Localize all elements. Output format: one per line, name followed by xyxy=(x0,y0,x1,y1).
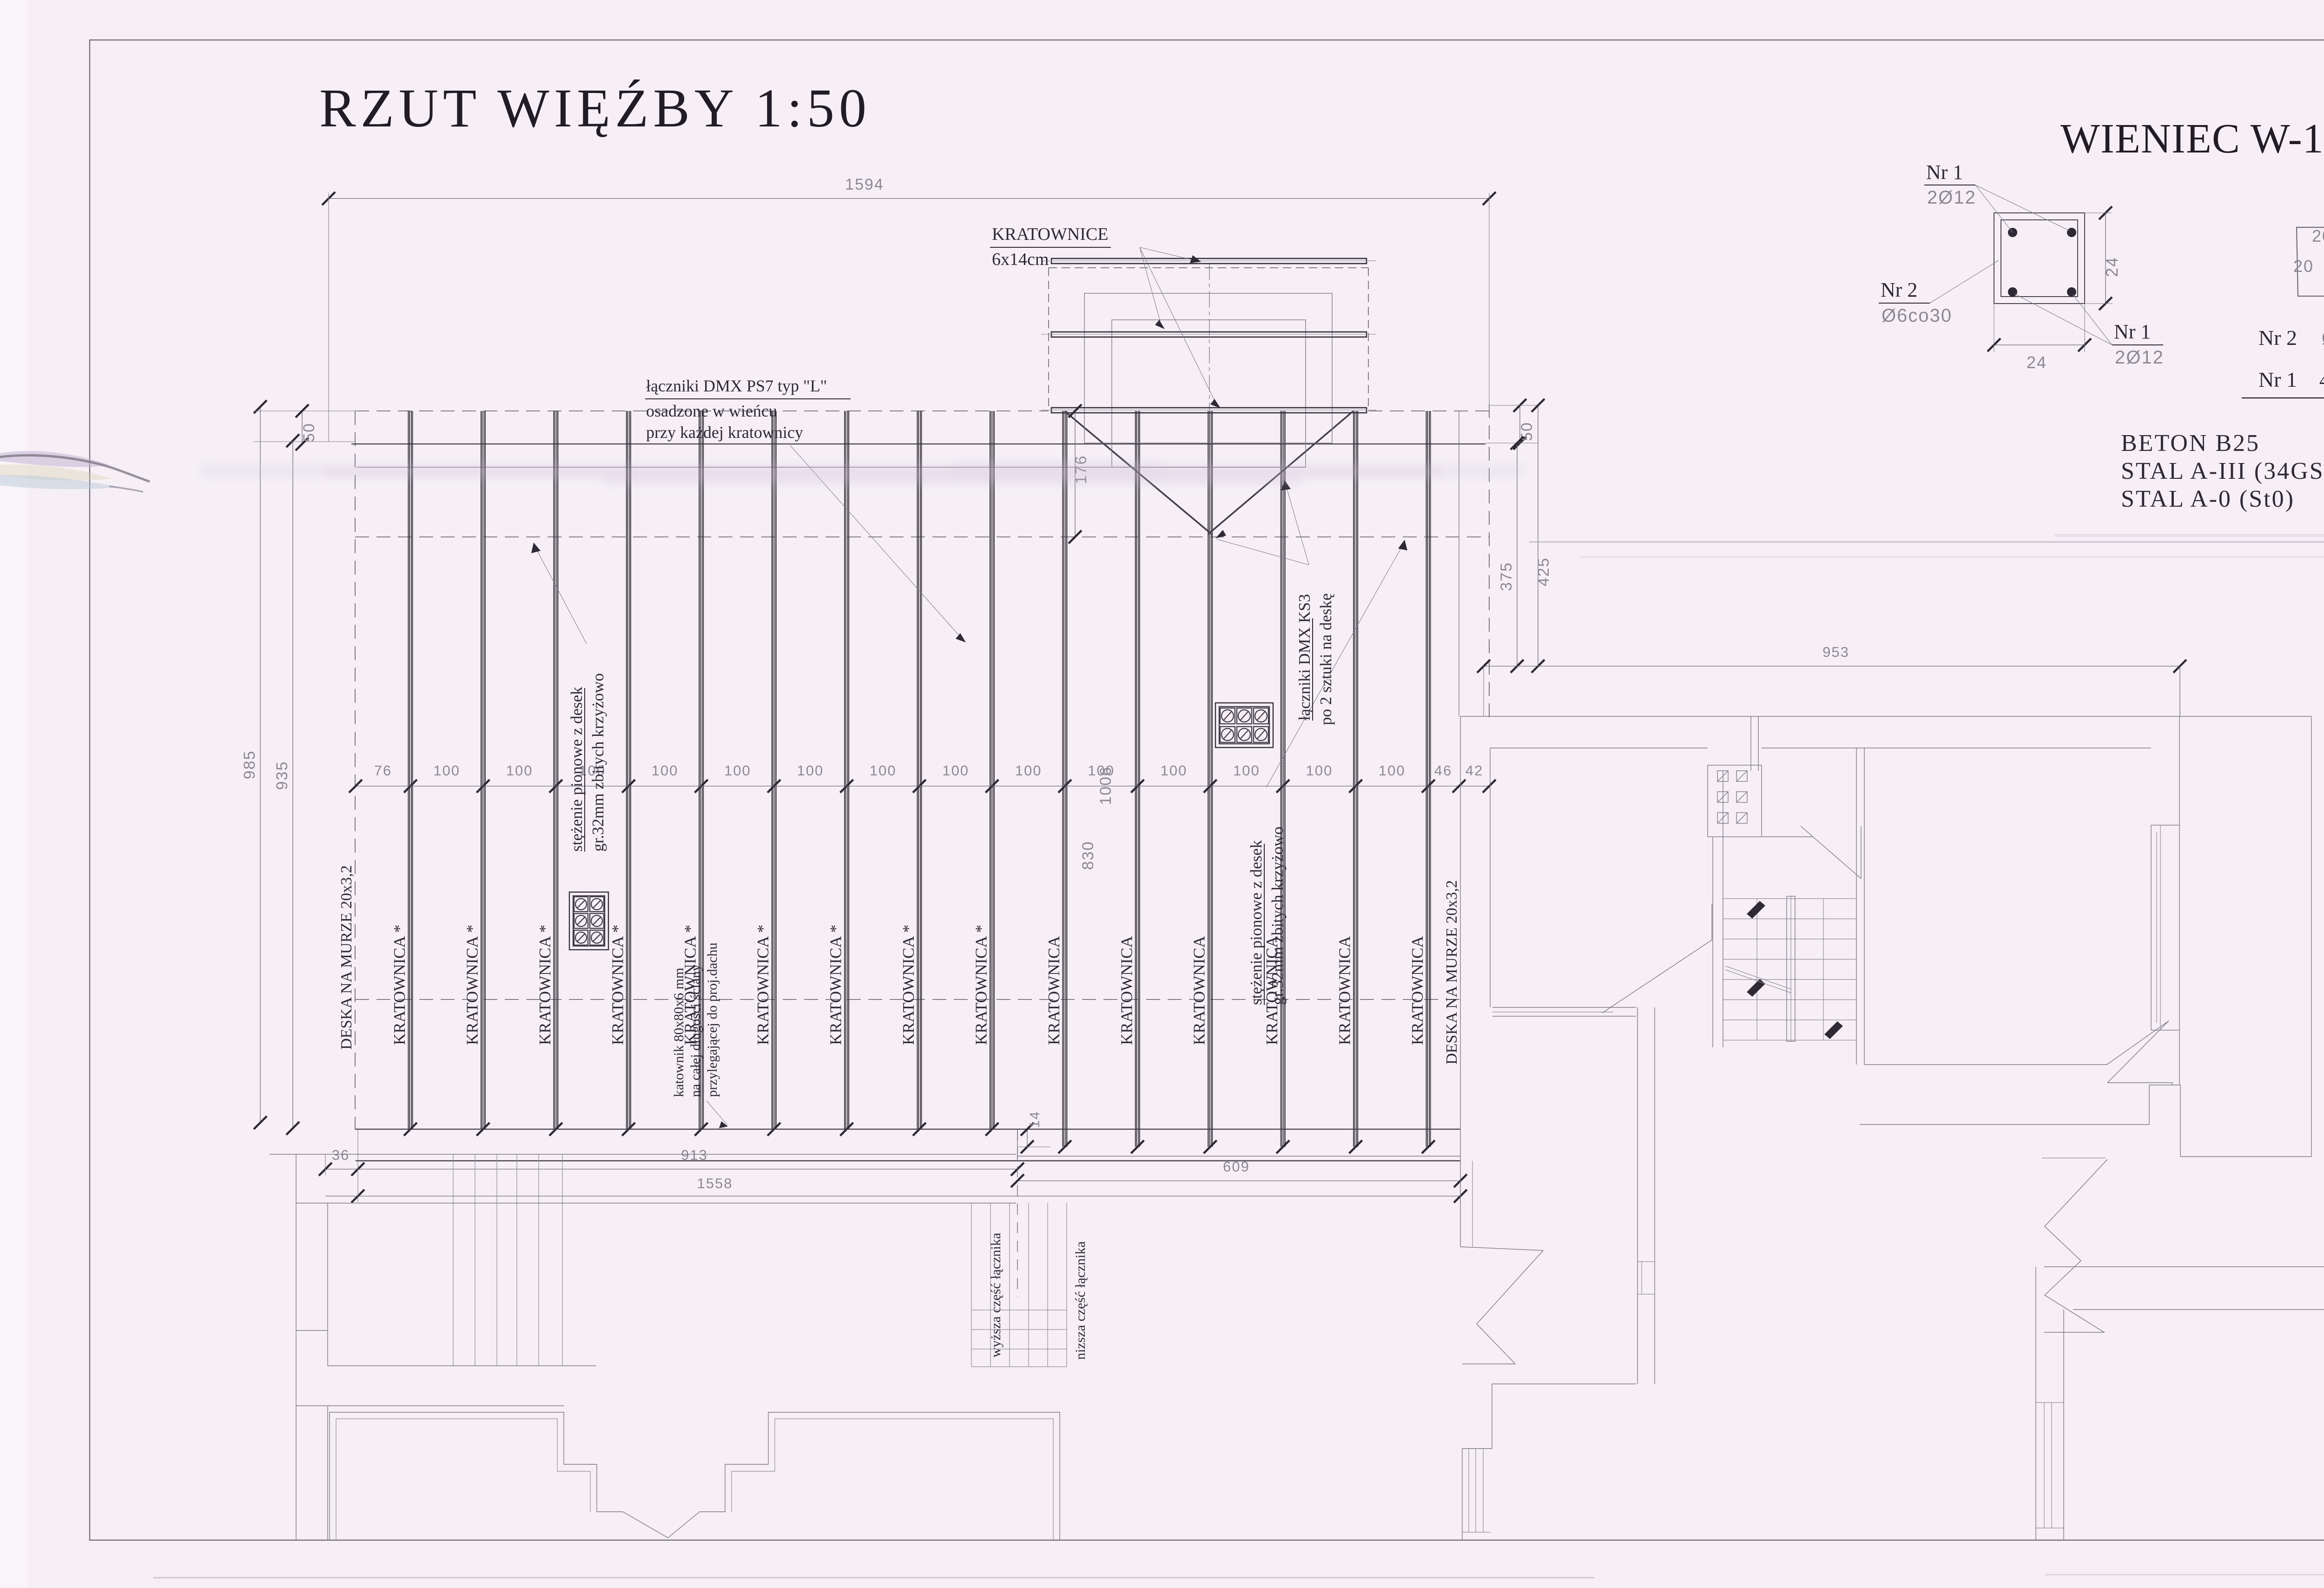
svg-text:913: 913 xyxy=(681,1147,708,1163)
svg-text:Nr 1: Nr 1 xyxy=(1926,161,1963,184)
svg-text:DESKA NA MURZE 20x3,2: DESKA NA MURZE 20x3,2 xyxy=(338,865,355,1050)
svg-text:100: 100 xyxy=(1306,762,1333,779)
svg-text:100: 100 xyxy=(433,762,460,779)
svg-text:BETON B25: BETON B25 xyxy=(2121,430,2260,457)
svg-text:gr.32mm zbitych krzyżowo: gr.32mm zbitych krzyżowo xyxy=(589,673,607,852)
svg-text:6x14cm: 6x14cm xyxy=(992,250,1049,269)
svg-text:STAL A-0 (St0): STAL A-0 (St0) xyxy=(2121,486,2295,512)
svg-text:WIENIEC W-1: WIENIEC W-1 xyxy=(2060,116,2324,162)
svg-text:KRATOWNICE: KRATOWNICE xyxy=(992,225,1109,244)
svg-text:14: 14 xyxy=(1027,1111,1043,1128)
svg-text:KRATOWNICA: KRATOWNICA xyxy=(1190,936,1208,1045)
svg-text:STAL A-III (34GS): STAL A-III (34GS) xyxy=(2121,458,2324,484)
svg-text:100: 100 xyxy=(1161,762,1188,779)
svg-text:100: 100 xyxy=(1233,762,1260,779)
svg-text:KRATOWNICA *: KRATOWNICA * xyxy=(536,925,554,1045)
svg-text:2Ø12: 2Ø12 xyxy=(2115,347,2164,368)
svg-text:Nr 1: Nr 1 xyxy=(2114,320,2151,343)
svg-text:100: 100 xyxy=(724,762,751,779)
svg-text:KRATOWNICA *: KRATOWNICA * xyxy=(463,925,481,1045)
svg-text:20: 20 xyxy=(2293,257,2314,276)
svg-text:76: 76 xyxy=(374,762,392,779)
svg-text:2Ø12: 2Ø12 xyxy=(1927,187,1976,208)
svg-text:KRATOWNICA *: KRATOWNICA * xyxy=(972,925,990,1045)
svg-text:RZUT WIĘŹBY 1:50: RZUT WIĘŹBY 1:50 xyxy=(319,78,871,139)
svg-text:100: 100 xyxy=(1379,762,1406,779)
svg-text:stężenie pionowe z desek: stężenie pionowe z desek xyxy=(1247,840,1265,1005)
svg-text:Ø6co30cm l=88cm A–0: Ø6co30cm l=88cm A–0 xyxy=(2322,328,2324,348)
svg-text:na całej długości ściany: na całej długości ściany xyxy=(688,964,703,1097)
svg-text:stężenie pionowe z desek: stężenie pionowe z desek xyxy=(568,687,586,852)
svg-text:KRATOWNICA: KRATOWNICA xyxy=(1117,936,1136,1045)
svg-text:100: 100 xyxy=(506,762,533,779)
svg-text:Nr 2: Nr 2 xyxy=(2258,326,2297,350)
svg-text:935: 935 xyxy=(273,761,291,790)
svg-text:łączniki DMX PS7 typ "L": łączniki DMX PS7 typ "L" xyxy=(646,377,827,395)
svg-text:1558: 1558 xyxy=(697,1175,733,1191)
svg-text:KRATOWNICA *: KRATOWNICA * xyxy=(390,925,409,1045)
svg-text:1006: 1006 xyxy=(1097,766,1115,805)
svg-text:KRATOWNICA: KRATOWNICA xyxy=(1045,936,1063,1045)
svg-text:przy każdej kratownicy: przy każdej kratownicy xyxy=(646,423,803,442)
svg-text:24: 24 xyxy=(2027,353,2047,372)
svg-text:DESKA NA MURZE 20x3,2: DESKA NA MURZE 20x3,2 xyxy=(1443,880,1460,1065)
svg-text:609: 609 xyxy=(1223,1158,1250,1175)
svg-text:KRATOWNICA: KRATOWNICA xyxy=(1336,936,1354,1045)
svg-text:985: 985 xyxy=(241,750,258,780)
svg-text:46: 46 xyxy=(1434,762,1452,779)
svg-text:katownik 80x80x6 mm: katownik 80x80x6 mm xyxy=(671,968,687,1097)
svg-text:KRATOWNICA *: KRATOWNICA * xyxy=(827,925,845,1045)
svg-text:425: 425 xyxy=(1535,557,1552,587)
svg-text:375: 375 xyxy=(1498,562,1515,591)
svg-text:Nr 1: Nr 1 xyxy=(2258,368,2297,391)
svg-text:36: 36 xyxy=(332,1147,350,1163)
svg-text:przylegającej do proj.dachu: przylegającej do proj.dachu xyxy=(705,943,720,1097)
svg-text:łączniki DMX KS3: łączniki DMX KS3 xyxy=(1295,594,1314,721)
svg-text:100: 100 xyxy=(870,762,897,779)
svg-text:KRATOWNICA *: KRATOWNICA * xyxy=(608,925,627,1045)
svg-text:po 2 sztuki na deskę: po 2 sztuki na deskę xyxy=(1317,593,1335,725)
svg-text:nizsza część łącznika: nizsza część łącznika xyxy=(1073,1241,1088,1360)
svg-text:osadzone w wieńcu: osadzone w wieńcu xyxy=(646,402,777,420)
svg-text:50: 50 xyxy=(300,423,318,442)
svg-text:Ø6co30: Ø6co30 xyxy=(1882,305,1952,326)
svg-text:KRATOWNICA *: KRATOWNICA * xyxy=(899,925,918,1045)
svg-text:100: 100 xyxy=(797,762,824,779)
svg-text:100: 100 xyxy=(652,762,679,779)
svg-text:Nr 2: Nr 2 xyxy=(1881,278,1917,301)
svg-text:KRATOWNICA: KRATOWNICA xyxy=(1408,936,1426,1045)
svg-text:gr.32mm zbitych krzyżowo: gr.32mm zbitych krzyżowo xyxy=(1268,827,1287,1005)
svg-text:42: 42 xyxy=(1466,762,1483,779)
svg-text:KRATOWNICA *: KRATOWNICA * xyxy=(754,925,772,1045)
svg-text:20: 20 xyxy=(2312,226,2324,245)
svg-text:1594: 1594 xyxy=(845,176,884,193)
svg-text:24: 24 xyxy=(2102,257,2121,277)
svg-text:953: 953 xyxy=(1822,644,1849,660)
svg-text:830: 830 xyxy=(1079,841,1097,870)
svg-text:4Ø12 A-III: 4Ø12 A-III xyxy=(2319,370,2324,391)
svg-text:100: 100 xyxy=(1015,762,1042,779)
svg-text:100: 100 xyxy=(942,762,969,779)
